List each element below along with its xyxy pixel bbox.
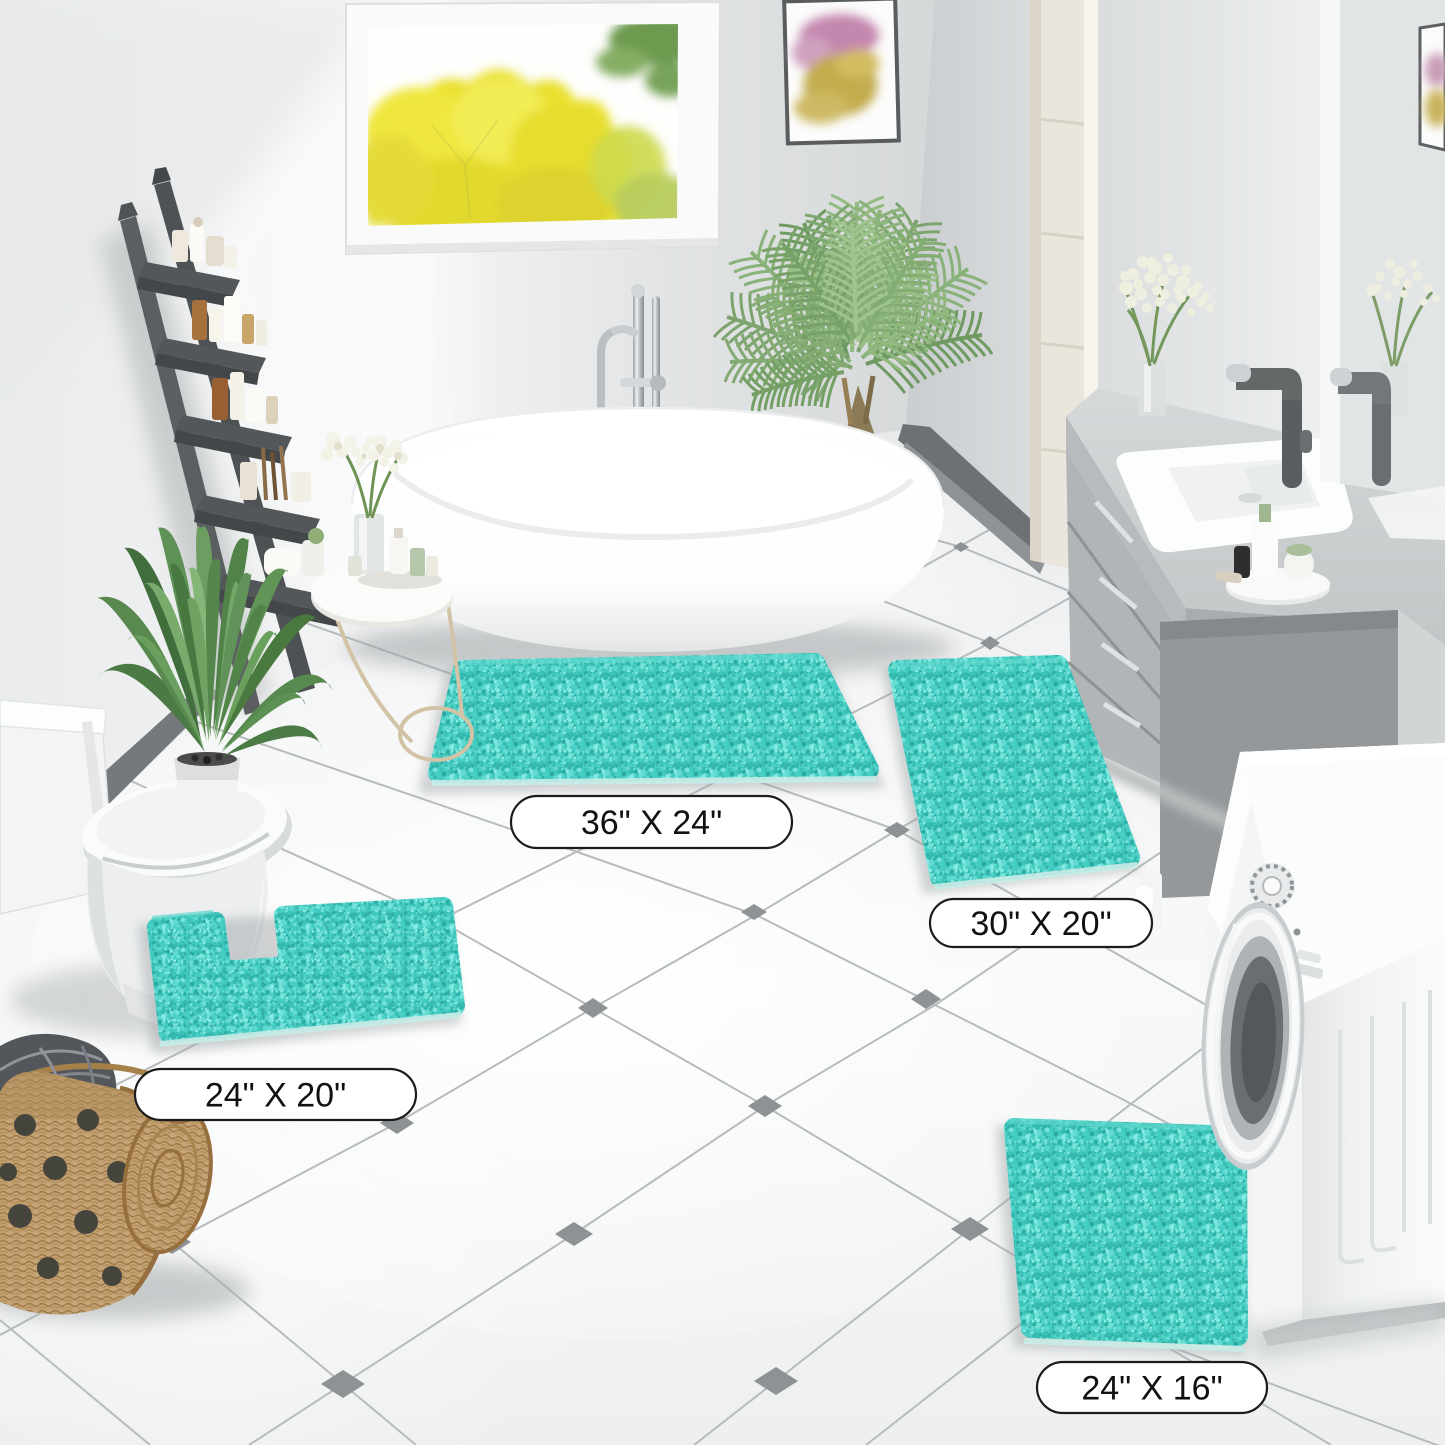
svg-text:24" X 16": 24" X 16" [1081, 1370, 1222, 1408]
svg-text:30" X 20": 30" X 20" [970, 905, 1111, 943]
svg-text:24" X 20": 24" X 20" [205, 1077, 346, 1115]
svg-text:36" X 24": 36" X 24" [581, 804, 722, 842]
